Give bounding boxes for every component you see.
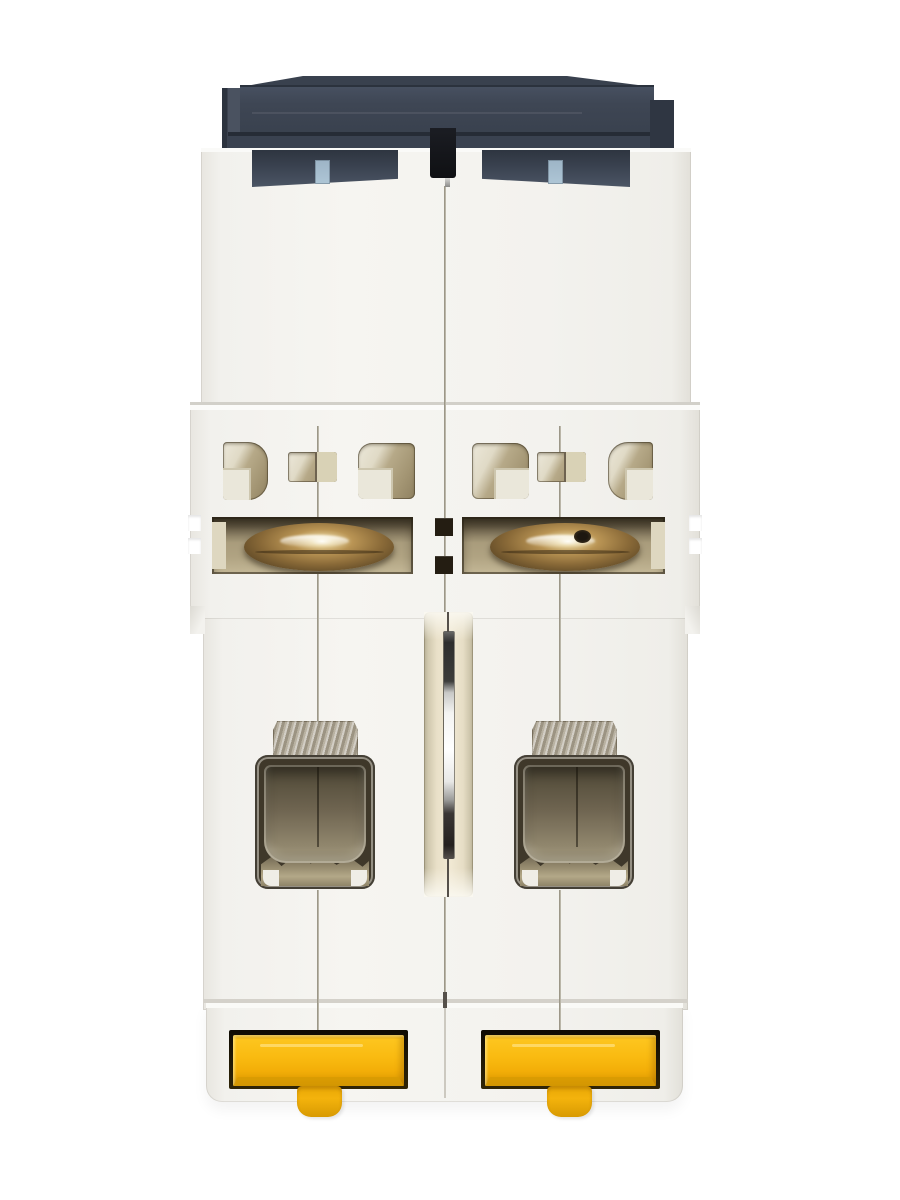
vent-inner-wall <box>494 468 529 499</box>
coil-window-left <box>212 517 413 574</box>
din-clip-release-tab-left <box>297 1086 342 1117</box>
terminal-clamp <box>264 765 366 863</box>
right-chamfer <box>685 606 700 634</box>
terminal-foot-right <box>610 870 626 886</box>
terminal-clamp <box>523 765 625 863</box>
din-clip-release-tab-right <box>547 1086 592 1117</box>
blue-coding-tab-left <box>315 160 330 184</box>
coil-window-right <box>462 517 665 574</box>
coil-screw-hole <box>574 530 591 543</box>
center-latch-block-top <box>435 518 453 536</box>
body-upper-block <box>201 148 691 412</box>
terminal-foot-left <box>522 870 538 886</box>
left-pole-seam-lower <box>317 890 319 1032</box>
center-pole-seam-lower <box>444 897 446 995</box>
vent-seam-split <box>564 452 586 482</box>
din-rail-clip-left <box>233 1035 404 1086</box>
linkage-pin <box>443 631 455 859</box>
right-edge-notch-1 <box>689 515 702 531</box>
slot-end-wall <box>212 522 226 570</box>
coil-winding-groove <box>501 550 630 554</box>
terminal-window-left <box>255 755 375 889</box>
center-seam-notch <box>443 992 447 1008</box>
solenoid-coil-left <box>244 523 394 571</box>
crimp-plate-right <box>532 721 617 759</box>
terminal-foot-right <box>351 870 367 886</box>
right-pole-seam-lower <box>559 890 561 1032</box>
blue-coding-tab-right <box>548 160 563 184</box>
vent-seam-split <box>315 452 337 482</box>
center-notch <box>430 128 456 178</box>
center-seam-bottom-band <box>444 1008 446 1098</box>
center-notch-pin-glint <box>445 178 450 187</box>
left-edge-notch-2 <box>188 538 201 554</box>
terminal-foot-left <box>263 870 279 886</box>
din-rail-clip-right <box>485 1035 656 1086</box>
crimp-plate-left <box>273 721 358 759</box>
right-edge-notch-2 <box>689 538 702 554</box>
slot-end-wall <box>651 522 665 570</box>
coil-winding-groove <box>255 550 384 554</box>
vent-inner-wall <box>358 468 393 499</box>
solenoid-coil-right <box>490 523 640 571</box>
vent-opening-left-inner <box>358 443 415 499</box>
clamp-divider-line <box>317 767 319 847</box>
terminal-window-right <box>514 755 634 889</box>
vent-inner-wall <box>625 468 653 500</box>
vent-opening-left-outer <box>223 442 268 500</box>
housing-cap-right-step <box>650 100 674 152</box>
product-photo-stage <box>0 0 900 1200</box>
left-chamfer <box>190 606 205 634</box>
coil-highlight <box>280 535 349 547</box>
linkage-pin-shaft-top <box>447 612 449 632</box>
left-edge-notch-1 <box>188 515 201 531</box>
housing-cap-ridge <box>252 112 582 114</box>
linkage-pin-shaft-bottom <box>447 858 449 897</box>
vent-opening-left-small <box>288 452 337 482</box>
clamp-divider-line <box>576 767 578 847</box>
vent-opening-right-inner <box>472 443 529 499</box>
center-pole-seam-upper <box>444 186 446 612</box>
center-latch-block-bottom <box>435 556 453 574</box>
vent-opening-right-small <box>537 452 586 482</box>
vent-opening-right-outer <box>608 442 653 500</box>
vent-inner-wall <box>223 468 251 500</box>
